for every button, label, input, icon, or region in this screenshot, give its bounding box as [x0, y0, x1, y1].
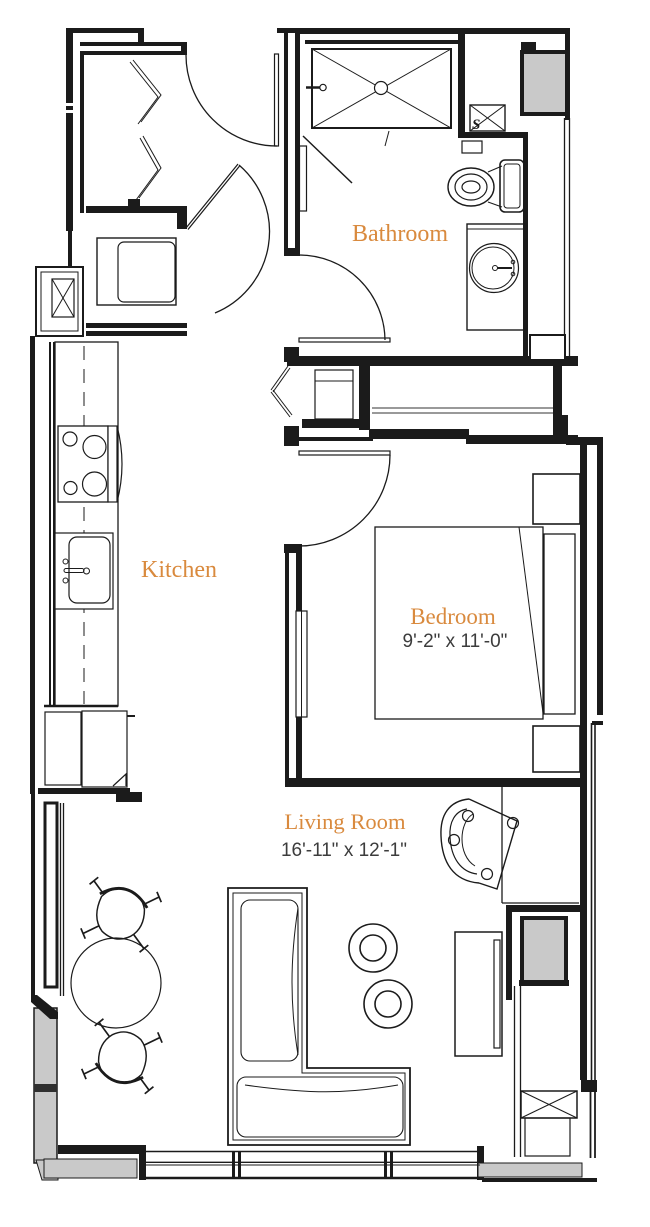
svg-text:Bedroom: Bedroom — [410, 604, 496, 629]
svg-text:Kitchen: Kitchen — [141, 557, 217, 583]
svg-text:Bathroom: Bathroom — [352, 221, 448, 247]
svg-text:16'-11" x 12'-1": 16'-11" x 12'-1" — [281, 840, 407, 861]
svg-text:9'-2" x 11'-0": 9'-2" x 11'-0" — [403, 631, 508, 652]
svg-text:S: S — [472, 117, 480, 133]
svg-text:Living Room: Living Room — [284, 809, 406, 834]
